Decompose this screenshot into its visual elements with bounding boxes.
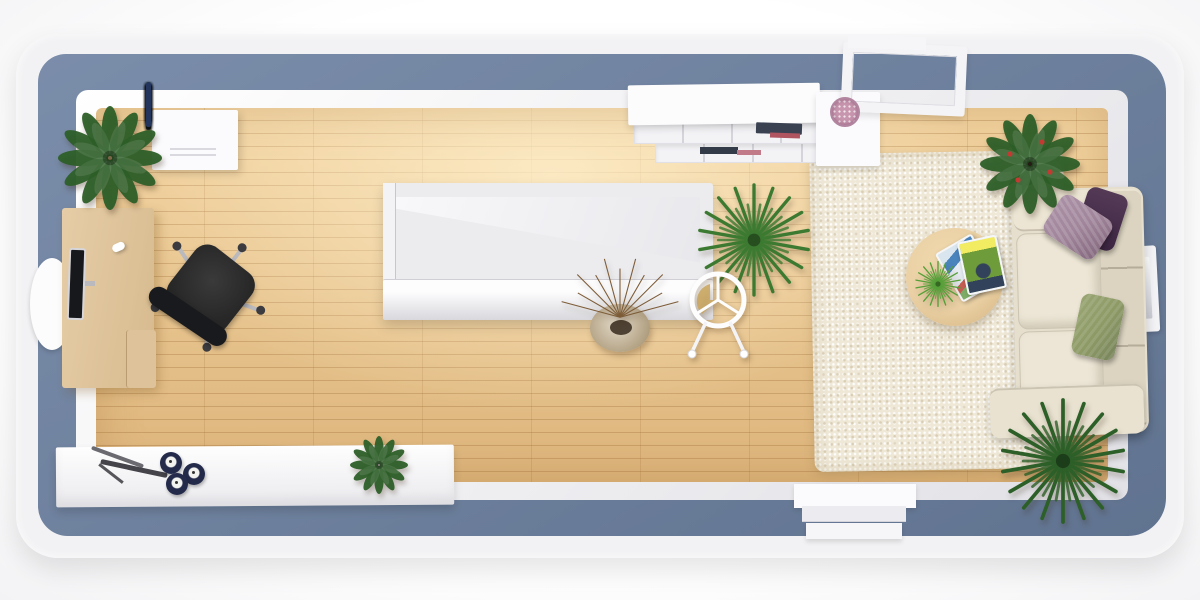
decorative-plate <box>830 97 860 127</box>
candle <box>166 473 188 495</box>
door-threshold <box>794 484 916 508</box>
door-step <box>802 506 906 522</box>
wall-crossing-frame <box>841 41 968 116</box>
bushy-plant <box>58 106 162 210</box>
leafy-plant-graphic <box>58 106 162 210</box>
spiky-plant-graphic <box>992 390 1134 532</box>
desk-drawer-pedestal <box>126 330 156 388</box>
succulent-plant <box>912 258 964 310</box>
ring-chair <box>676 266 760 360</box>
computer-monitor <box>67 248 87 321</box>
leafy-plant-graphic <box>350 436 408 494</box>
twig-vase <box>556 240 684 356</box>
door-steps <box>802 506 906 540</box>
book <box>737 150 761 155</box>
ring-chair-graphic <box>676 266 760 360</box>
spiky-plant-graphic <box>912 258 964 310</box>
rosette-plant <box>350 436 408 494</box>
dry-twigs <box>556 240 684 324</box>
twigs-plant-graphic <box>556 240 684 324</box>
dresser-handle-slots <box>170 148 216 156</box>
tv-console-top <box>628 83 821 126</box>
floor-plan-scene <box>0 0 1200 600</box>
palm-plant <box>992 390 1134 532</box>
outer-wall-shelf <box>848 35 926 51</box>
door-step <box>806 523 902 539</box>
book <box>770 132 800 138</box>
candle <box>160 452 182 474</box>
book <box>700 147 738 154</box>
staircase-side-wall <box>383 183 396 283</box>
monitor-stand <box>85 281 95 286</box>
